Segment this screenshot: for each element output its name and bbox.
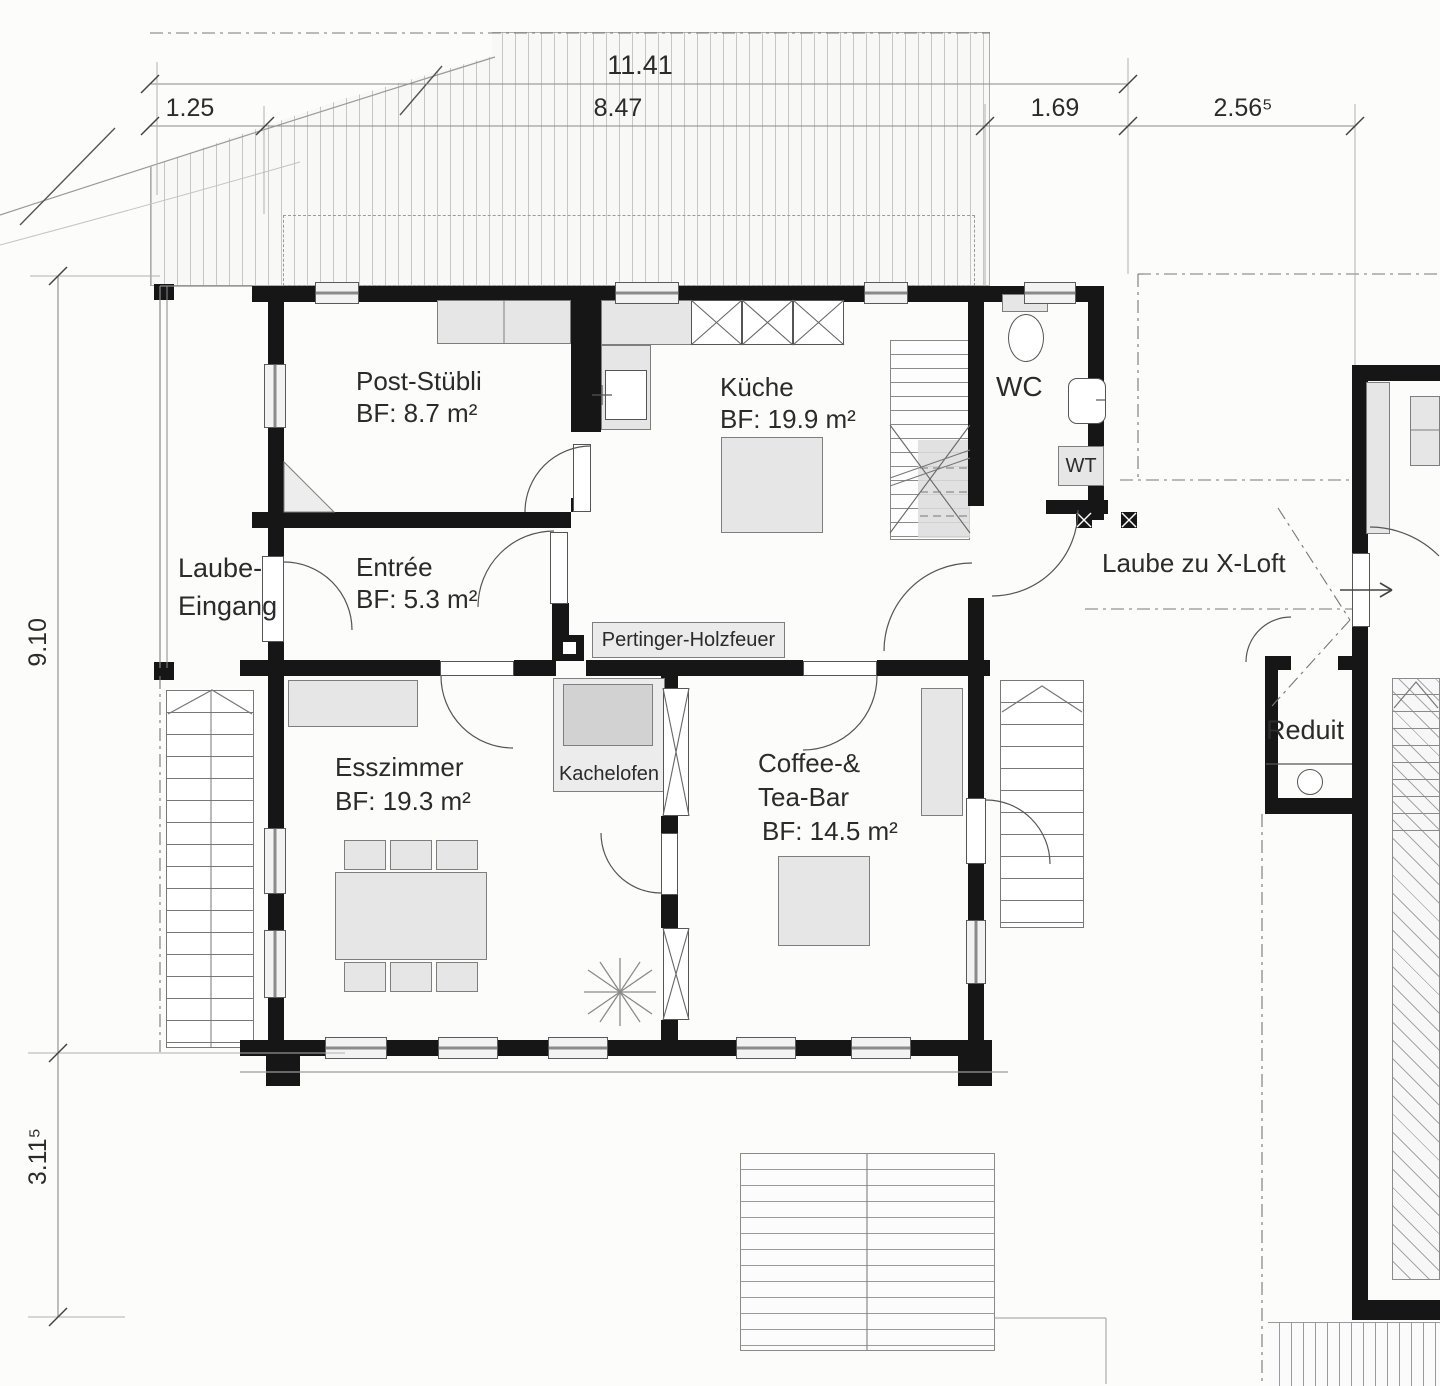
room-reduit-name: Reduit [1266,714,1344,746]
room-wc-name: WC [996,370,1043,404]
wall-div-c [661,895,678,928]
chair [436,840,478,870]
fireplace-flue-core [563,642,576,654]
coffee-bench [921,688,963,816]
door-post-stuebli [573,444,591,512]
floor-plan: WT Pertinger-Holzfeuer [0,0,1440,1386]
upper-cabinet [793,300,844,345]
door-entree-kueche [550,532,568,604]
room-coffee-line1: Coffee-& [758,748,860,779]
dim-seg1: 1.25 [160,94,220,123]
window [1024,282,1076,304]
room-laube-line1: Laube- [178,552,262,584]
xloft-furniture [1410,396,1440,466]
toilet-bowl [1008,314,1044,362]
door-ess-coffee [661,833,678,895]
interior-stair-lower-flight [918,440,970,538]
window [736,1037,796,1059]
dim-seg2: 8.47 [583,94,653,123]
dim-seg3: 1.69 [1020,94,1090,123]
window [438,1037,498,1059]
wall-div-d [661,1020,678,1040]
tall-cabinet [663,928,689,1020]
wall-mid-b [514,660,556,676]
room-ess-area: BF: 19.3 m² [335,786,471,817]
chair [436,962,478,992]
window [851,1037,911,1059]
door-coffeebar [803,661,877,676]
kitchen-table [721,437,823,533]
column-marker [1076,512,1092,528]
chair [390,840,432,870]
roof-dashed-outline [283,215,975,286]
room-kueche-name: Küche [720,372,794,403]
upper-cabinet [691,300,742,345]
kachelofen-stove [563,684,653,746]
door-coffee-east [966,798,986,864]
chair [344,962,386,992]
dim-v2: 3.11⁵ [24,1128,53,1185]
kachelofen-label: Kachelofen [553,762,665,786]
porch-post-top [154,284,174,300]
window [315,282,359,304]
xloft-wall-west-b [1352,627,1368,1318]
room-ess-name: Esszimmer [335,752,464,783]
south-terrace-steps [740,1153,995,1351]
column-marker [1121,512,1137,528]
room-post-area: BF: 8.7 m² [356,398,477,429]
window [264,364,286,428]
sideboard [288,680,418,727]
window [966,920,986,984]
door-esszimmer [440,661,514,676]
chair [390,962,432,992]
room-laube-line2: Eingang [178,590,277,622]
wall-mid-a [240,660,440,676]
wall-post-south [252,512,571,528]
room-coffee-area: BF: 14.5 m² [762,816,898,847]
door-xloft [1352,553,1370,627]
wall-corridor-stub [968,598,984,676]
post-sw [266,1040,300,1086]
reduit-wall-north-b [1338,656,1352,670]
upper-cabinet [742,300,793,345]
wall-post-kueche [571,286,601,432]
post-se [958,1040,992,1086]
window [864,282,908,304]
dim-total: 11.41 [600,50,680,81]
wall-wc-west [968,286,984,506]
room-entree-area: BF: 5.3 m² [356,584,477,615]
washbasin [1068,378,1106,424]
xloft-furniture [1366,382,1390,534]
coffee-table [778,856,870,946]
kitchen-sink [605,370,647,420]
window [548,1037,608,1059]
room-kueche-area: BF: 19.9 m² [720,404,856,435]
xloft-stair-treads [1392,678,1440,838]
chair [344,840,386,870]
reduit-fixture [1297,769,1323,795]
washstand-wt: WT [1058,446,1104,486]
porch-post-bottom [154,662,174,680]
dining-table [335,872,487,960]
post-cabinet [437,300,571,344]
southeast-deck [1268,1322,1440,1386]
xloft-wall-south [1352,1300,1440,1320]
dim-seg4: 2.56⁵ [1198,94,1288,123]
window [615,282,679,304]
room-post-name: Post-Stübli [356,366,482,397]
pertinger-box: Pertinger-Holzfeuer [592,622,785,658]
window [264,930,286,998]
wall-mid-c [586,660,803,676]
dim-v1: 9.10 [24,618,53,667]
tall-cabinet [663,688,689,816]
window [325,1037,387,1059]
window [264,828,286,894]
wt-label: WT [1065,455,1096,477]
pertinger-label: Pertinger-Holzfeuer [602,629,775,652]
reduit-wall-south [1265,798,1352,814]
laube-xloft-label: Laube zu X-Loft [1102,548,1286,579]
room-entree-name: Entrée [356,552,433,583]
east-exterior-stair [1000,680,1084,928]
west-exterior-stair [166,690,254,1048]
room-coffee-line2: Tea-Bar [758,782,849,813]
